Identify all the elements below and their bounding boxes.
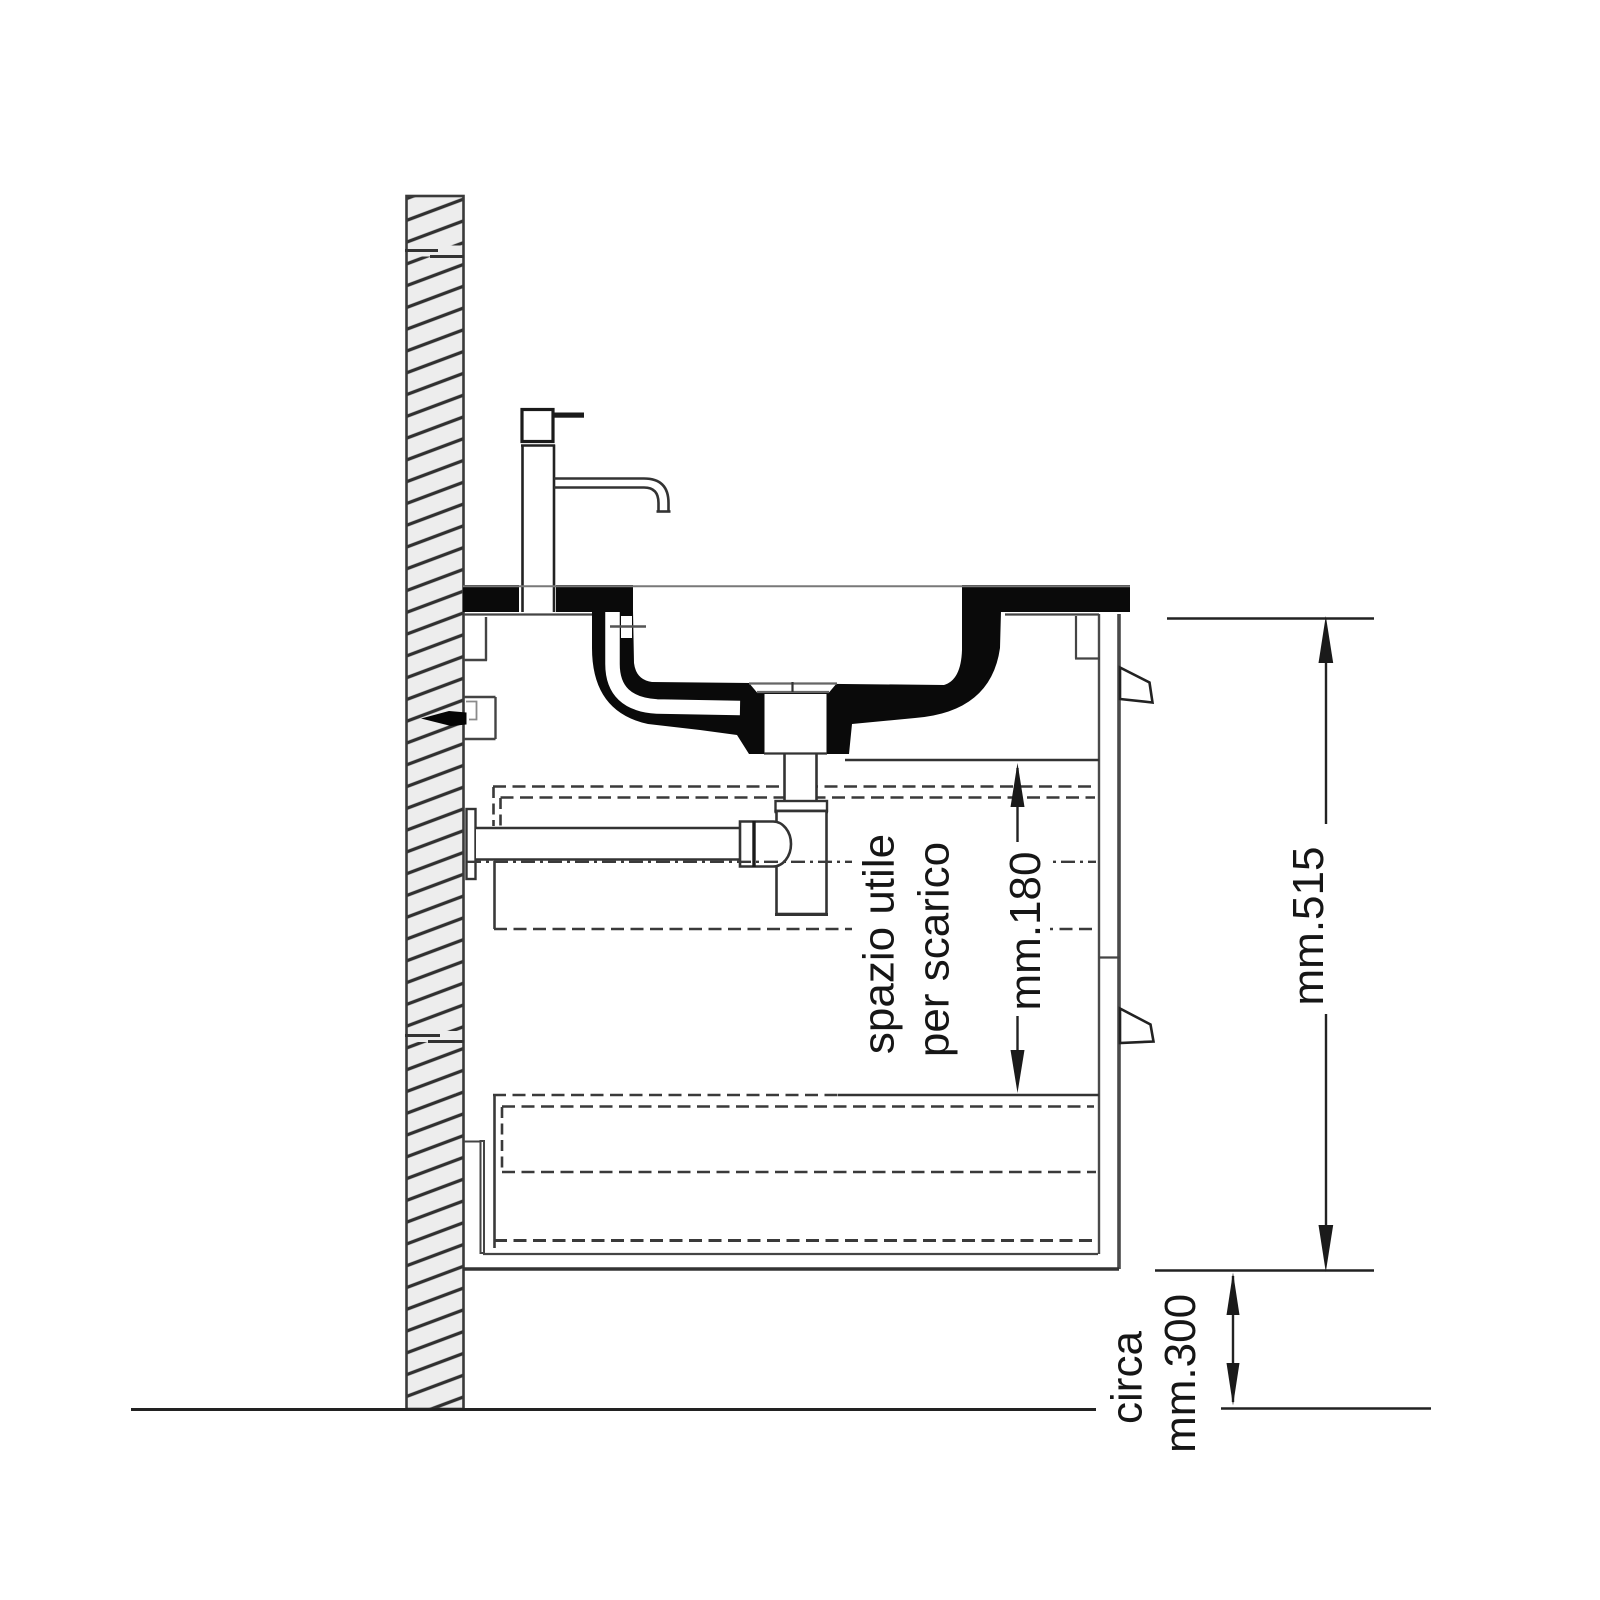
- svg-text:per scarico: per scarico: [909, 842, 958, 1057]
- svg-text:mm.180: mm.180: [1001, 852, 1050, 1011]
- svg-text:mm.300: mm.300: [1156, 1294, 1205, 1453]
- svg-text:circa: circa: [1103, 1331, 1152, 1424]
- svg-text:spazio utile: spazio utile: [854, 834, 903, 1054]
- svg-text:mm.515: mm.515: [1284, 847, 1333, 1006]
